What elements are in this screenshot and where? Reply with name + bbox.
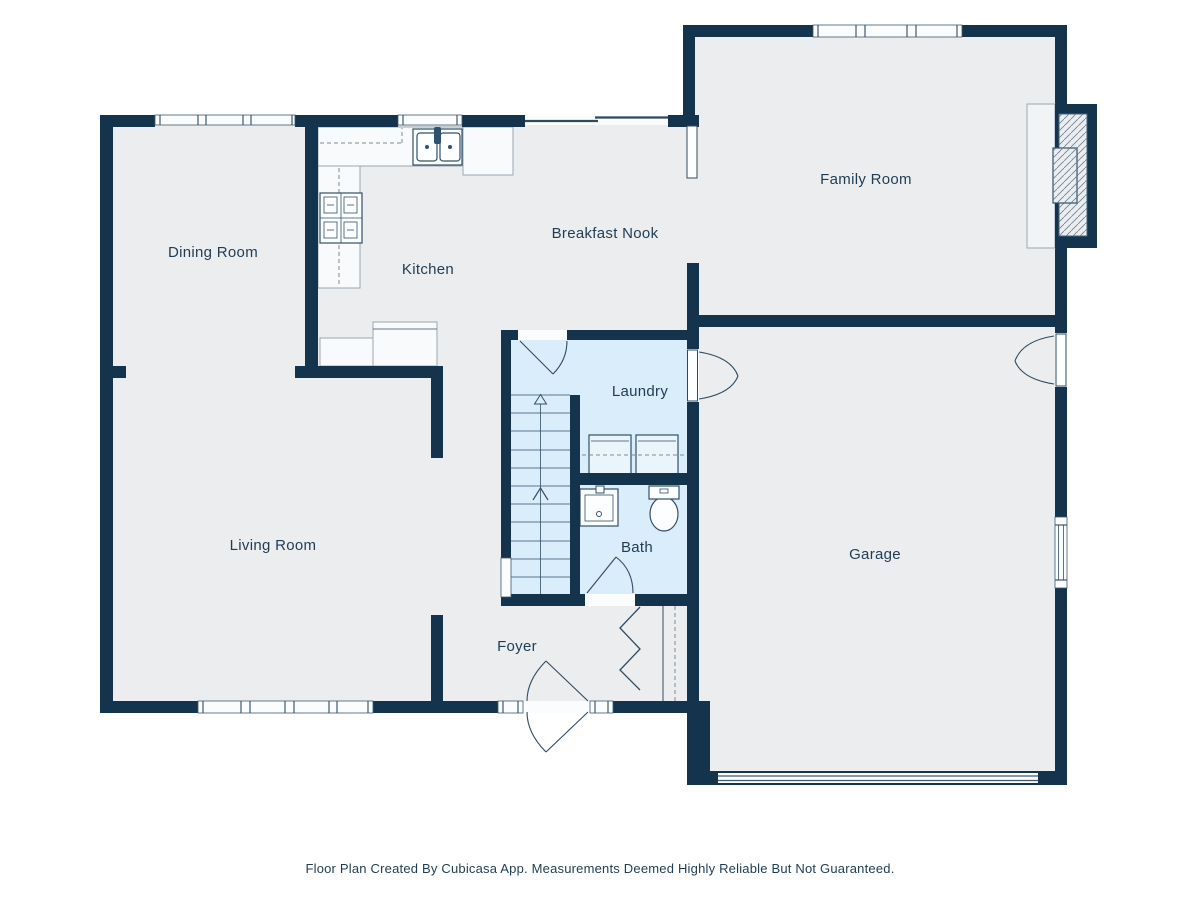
room-label-bath: Bath — [621, 539, 653, 556]
floor-plan-page: Dining Room Kitchen Breakfast Nook Famil… — [0, 0, 1200, 900]
room-label-garage: Garage — [849, 546, 901, 563]
kitchen-counter-right — [463, 127, 513, 175]
window — [813, 25, 962, 37]
sidelite-window — [590, 701, 613, 713]
window — [1055, 517, 1067, 588]
disclaimer-caption: Floor Plan Created By Cubicasa App. Meas… — [305, 861, 894, 876]
kitchen-sink-icon — [413, 127, 462, 165]
window — [155, 115, 295, 125]
room-label-kitchen: Kitchen — [402, 261, 454, 278]
room-label-dining-room: Dining Room — [168, 244, 258, 261]
floor-areas — [107, 31, 1061, 779]
window — [198, 701, 373, 713]
open-door-leaf — [687, 126, 697, 178]
room-label-living-room: Living Room — [230, 537, 317, 554]
fireplace-icon — [1027, 104, 1097, 248]
sidelite-window — [498, 701, 523, 713]
room-label-breakfast-nook: Breakfast Nook — [552, 225, 659, 242]
family-garage-floor-area — [689, 31, 1061, 779]
bathroom-sink-icon — [580, 486, 618, 526]
wall-opening — [501, 558, 511, 597]
stove-icon — [320, 193, 362, 243]
garage-door — [718, 773, 1038, 783]
floor-plan-svg: Dining Room Kitchen Breakfast Nook Famil… — [0, 0, 1200, 900]
room-label-family-room: Family Room — [820, 171, 912, 188]
window — [398, 115, 462, 125]
room-label-foyer: Foyer — [497, 638, 537, 655]
room-label-laundry: Laundry — [612, 383, 669, 400]
toilet-icon — [649, 486, 679, 531]
sliding-door — [525, 115, 668, 125]
